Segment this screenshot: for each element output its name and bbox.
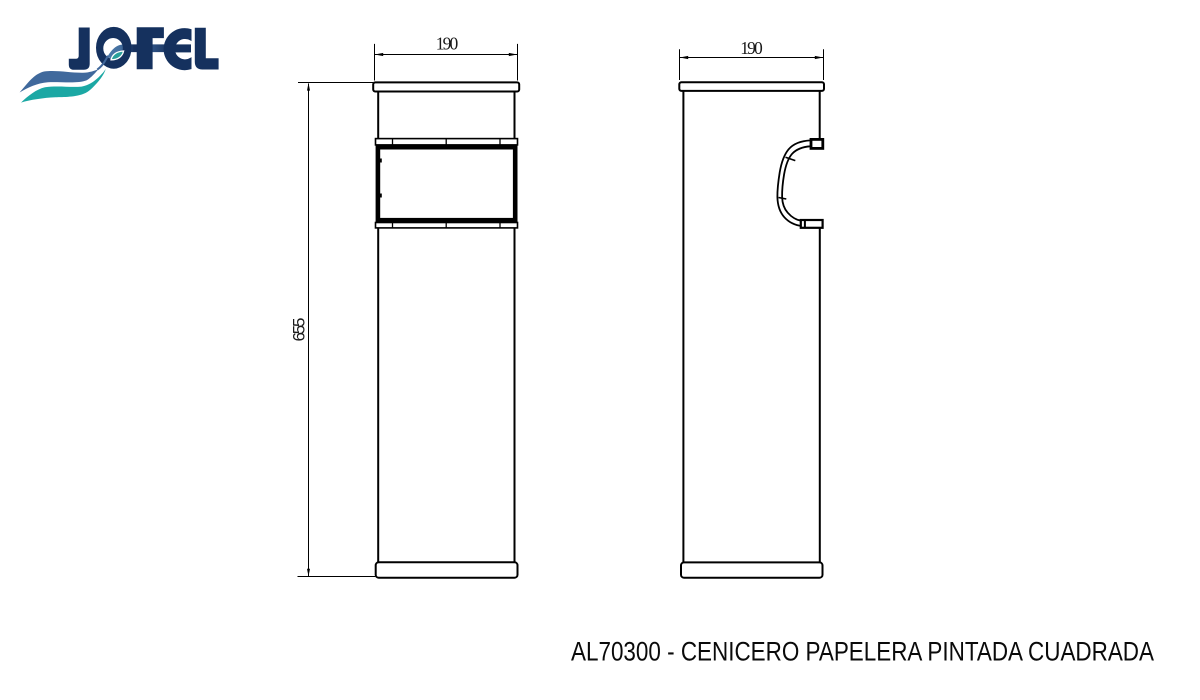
svg-text:190: 190 — [740, 38, 763, 58]
svg-text:AL70300 - CENICERO PAPELERA PI: AL70300 - CENICERO PAPELERA PINTADA CUAD… — [571, 637, 1154, 667]
svg-text:190: 190 — [436, 33, 459, 53]
svg-text:655: 655 — [290, 318, 309, 342]
